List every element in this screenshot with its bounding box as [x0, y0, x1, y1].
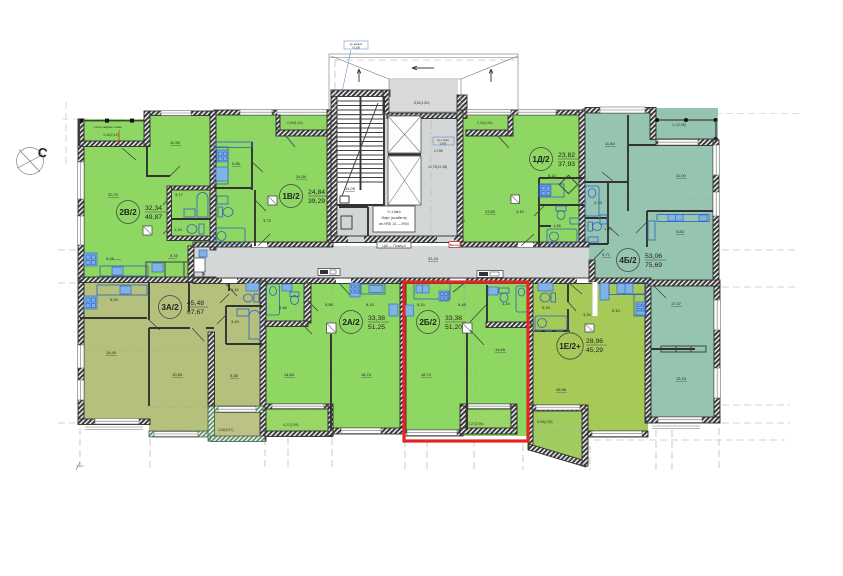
- svg-text:5,14: 5,14: [548, 173, 557, 178]
- svg-text:4,46: 4,46: [279, 305, 288, 310]
- svg-text:1,43: 1,43: [174, 227, 183, 232]
- svg-text:Выход: Выход: [450, 243, 459, 247]
- svg-text:16,74: 16,74: [421, 372, 432, 377]
- svg-text:3,10: 3,10: [516, 209, 525, 214]
- svg-text:2Б/2: 2Б/2: [419, 318, 437, 327]
- svg-text:67,67: 67,67: [187, 309, 204, 316]
- svg-text:4,43: 4,43: [502, 301, 511, 306]
- svg-text:5,15: 5,15: [417, 302, 426, 307]
- svg-text:1,46: 1,46: [553, 223, 562, 228]
- svg-text:17,37: 17,37: [671, 301, 682, 306]
- svg-text:4,27(2,96): 4,27(2,96): [468, 422, 483, 426]
- svg-text:4,27(2,99): 4,27(2,99): [283, 423, 298, 427]
- svg-text:28,96: 28,96: [556, 387, 567, 392]
- svg-text:3,73: 3,73: [263, 218, 272, 223]
- svg-text:1,40: 1,40: [604, 226, 613, 231]
- svg-text:20,70: 20,70: [108, 192, 119, 197]
- svg-text:19,49: 19,49: [106, 350, 117, 355]
- svg-text:37,93: 37,93: [558, 161, 575, 168]
- svg-text:4,30: 4,30: [457, 218, 466, 223]
- svg-text:4Б/2: 4Б/2: [619, 256, 637, 265]
- svg-text:23,82: 23,82: [558, 152, 575, 159]
- svg-text:33,38: 33,38: [368, 315, 385, 322]
- svg-text:1В/2: 1В/2: [282, 192, 300, 201]
- svg-text:10,83: 10,83: [172, 372, 183, 377]
- svg-text:8,61(1,80): 8,61(1,80): [414, 101, 429, 105]
- svg-text:2,198: 2,198: [434, 149, 443, 153]
- svg-text:2,20(1,54): 2,20(1,54): [477, 121, 492, 125]
- svg-text:6,48: 6,48: [458, 302, 467, 307]
- svg-text:31,24: 31,24: [428, 256, 439, 261]
- svg-text:+2,100: +2,100: [352, 45, 361, 49]
- svg-text:12,75(12,48): 12,75(12,48): [428, 165, 447, 169]
- svg-text:1Д/2: 1Д/2: [532, 155, 550, 164]
- svg-text:18,74: 18,74: [361, 372, 372, 377]
- svg-text:51,25: 51,25: [368, 324, 385, 331]
- svg-text:11,98: 11,98: [170, 140, 180, 145]
- svg-text:1Е/2+: 1Е/2+: [559, 342, 581, 351]
- svg-text:5,24: 5,24: [110, 297, 119, 302]
- svg-text:28,96: 28,96: [586, 338, 603, 345]
- svg-text:8,15: 8,15: [366, 302, 375, 307]
- svg-text:5,10: 5,10: [612, 308, 621, 313]
- svg-text:32,34: 32,34: [145, 205, 162, 212]
- svg-text:14,64: 14,64: [284, 372, 295, 377]
- svg-text:9,77: 9,77: [602, 252, 611, 257]
- svg-text:24,84: 24,84: [308, 189, 325, 196]
- svg-text:утепл. наружн. стены: утепл. наружн. стены: [94, 125, 122, 129]
- svg-text:5,58: 5,58: [325, 302, 334, 307]
- svg-text:3,44(2,42): 3,44(2,42): [103, 133, 118, 137]
- svg-text:2В/2: 2В/2: [119, 208, 137, 217]
- svg-text:3,17: 3,17: [175, 192, 184, 197]
- svg-text:24,84: 24,84: [296, 174, 307, 179]
- svg-text:75,69: 75,69: [645, 262, 662, 269]
- svg-text:39,29: 39,29: [308, 198, 325, 205]
- svg-text:51,20: 51,20: [445, 324, 462, 331]
- svg-text:3А/2: 3А/2: [161, 303, 179, 312]
- svg-text:11,84: 11,84: [605, 141, 615, 146]
- svg-text:1-Г(2,38): 1-Г(2,38): [672, 123, 686, 127]
- svg-text:2,50(1,02): 2,50(1,02): [287, 121, 302, 125]
- svg-text:3,19: 3,19: [231, 319, 240, 324]
- svg-text:5,83: 5,83: [676, 229, 685, 234]
- svg-text:15,15: 15,15: [676, 376, 687, 381]
- svg-text:33,38: 33,38: [445, 315, 462, 322]
- svg-text:49,87: 49,87: [145, 214, 162, 221]
- svg-text:2А/2: 2А/2: [342, 318, 360, 327]
- svg-text:3,43: 3,43: [542, 305, 551, 310]
- svg-text:11,00: 11,00: [676, 173, 686, 178]
- svg-text:53,06: 53,06: [645, 253, 662, 260]
- svg-text:3,62(3,47): 3,62(3,47): [218, 428, 233, 432]
- svg-text:5,99(4,35): 5,99(4,35): [537, 420, 552, 424]
- svg-text:Лифт (хозяйств): Лифт (хозяйств): [381, 216, 406, 220]
- svg-text:5,88: 5,88: [232, 161, 241, 166]
- svg-text:14,65: 14,65: [495, 347, 506, 352]
- svg-text:вн-НПБ 14 — 2904: вн-НПБ 14 — 2904: [379, 222, 409, 226]
- svg-text:14,09: 14,09: [345, 186, 356, 191]
- svg-text:0,000: 0,000: [440, 141, 447, 145]
- svg-text:45,29: 45,29: [586, 347, 603, 354]
- svg-text:23,82: 23,82: [485, 209, 496, 214]
- svg-text:3,34: 3,34: [583, 312, 592, 317]
- svg-text:5,28: 5,28: [106, 256, 115, 261]
- svg-text:5,15: 5,15: [170, 253, 179, 258]
- svg-text:1,42: 1,42: [231, 287, 240, 292]
- svg-text:45,48: 45,48: [187, 300, 204, 307]
- svg-text:5,38: 5,38: [230, 373, 239, 378]
- svg-text:3,79: 3,79: [594, 200, 603, 205]
- svg-text:ЦШ — Позиц.4: ЦШ — Позиц.4: [382, 244, 406, 248]
- svg-text:У=1,5м/с: У=1,5м/с: [387, 210, 401, 214]
